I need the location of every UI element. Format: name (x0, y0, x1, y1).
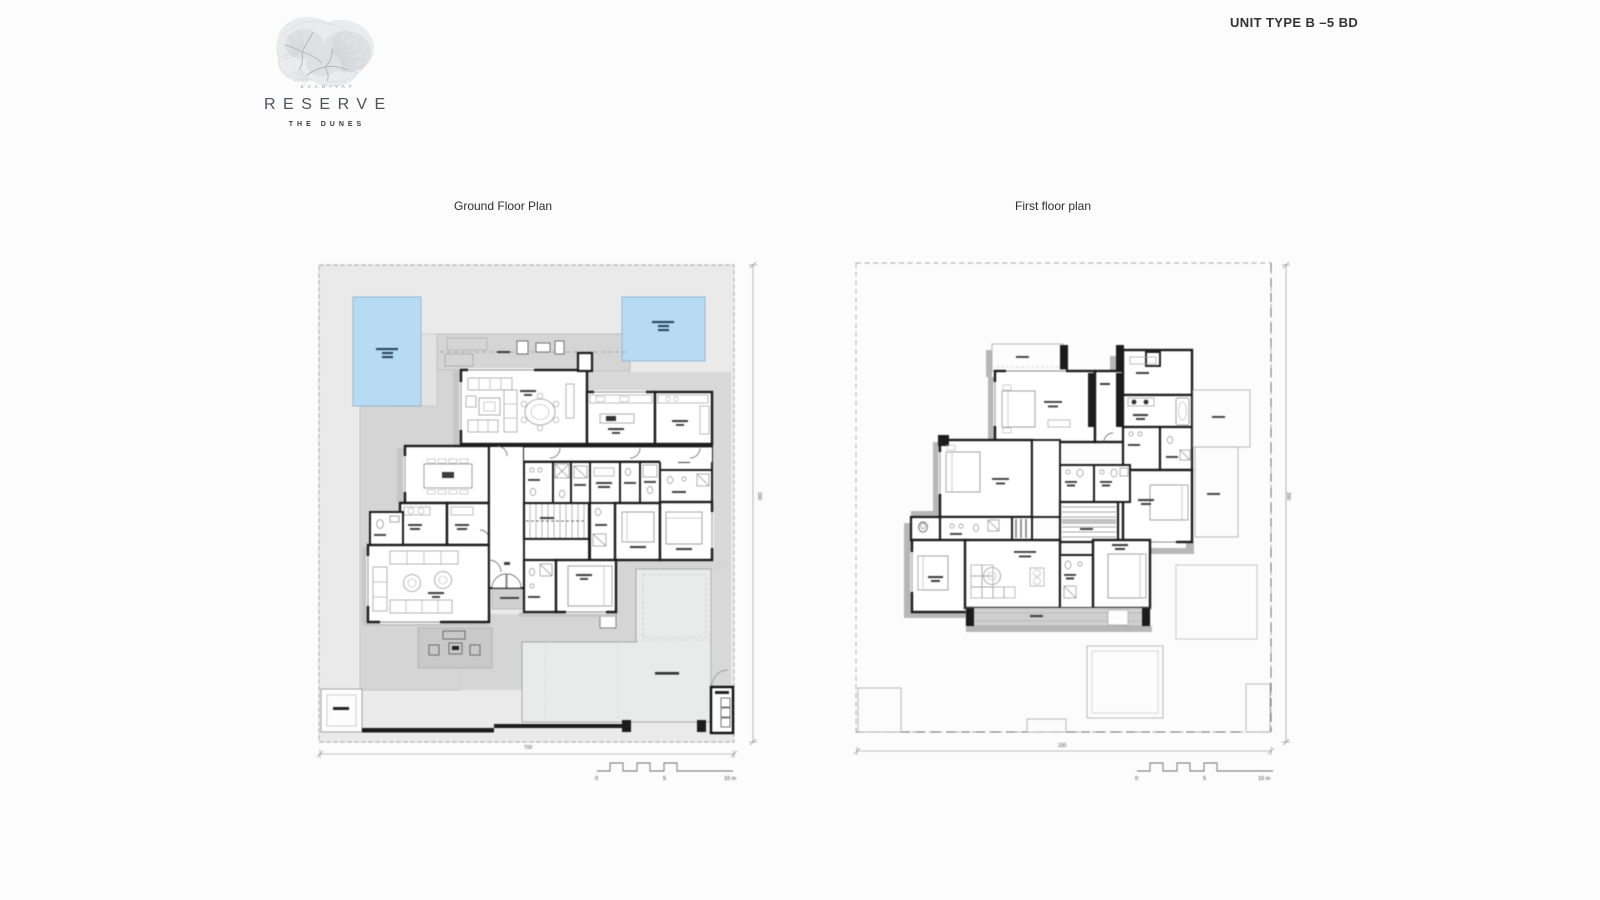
svg-text:0: 0 (595, 776, 598, 782)
svg-text:330: 330 (1058, 743, 1067, 749)
svg-text:5: 5 (1203, 776, 1206, 782)
svg-text:390: 390 (756, 492, 762, 501)
svg-text:0: 0 (1135, 776, 1138, 782)
svg-text:10 m: 10 m (1258, 776, 1271, 782)
svg-text:390: 390 (1285, 492, 1291, 501)
svg-text:700: 700 (524, 745, 533, 751)
svg-text:5: 5 (663, 776, 666, 782)
svg-text:10 m: 10 m (724, 776, 737, 782)
